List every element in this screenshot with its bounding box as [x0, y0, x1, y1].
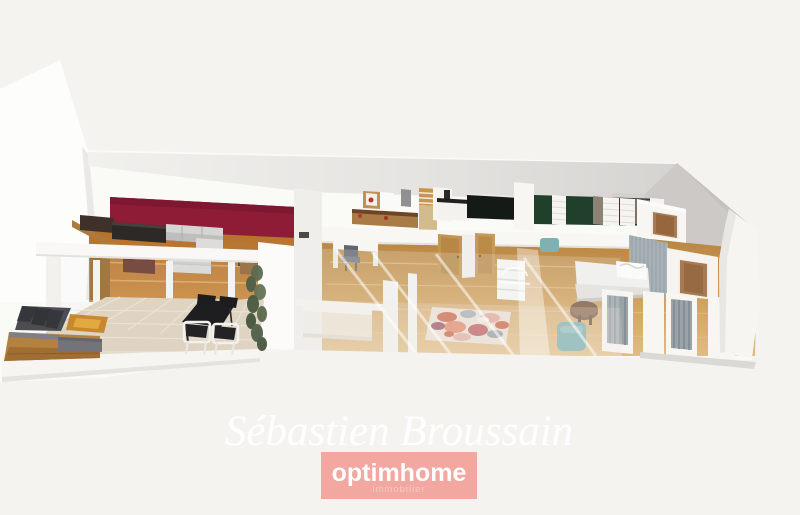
svg-text:Sébastien Broussain: Sébastien Broussain — [225, 408, 573, 455]
svg-text:immobilier: immobilier — [372, 484, 425, 495]
svg-text:optimhome: optimhome — [332, 459, 467, 487]
